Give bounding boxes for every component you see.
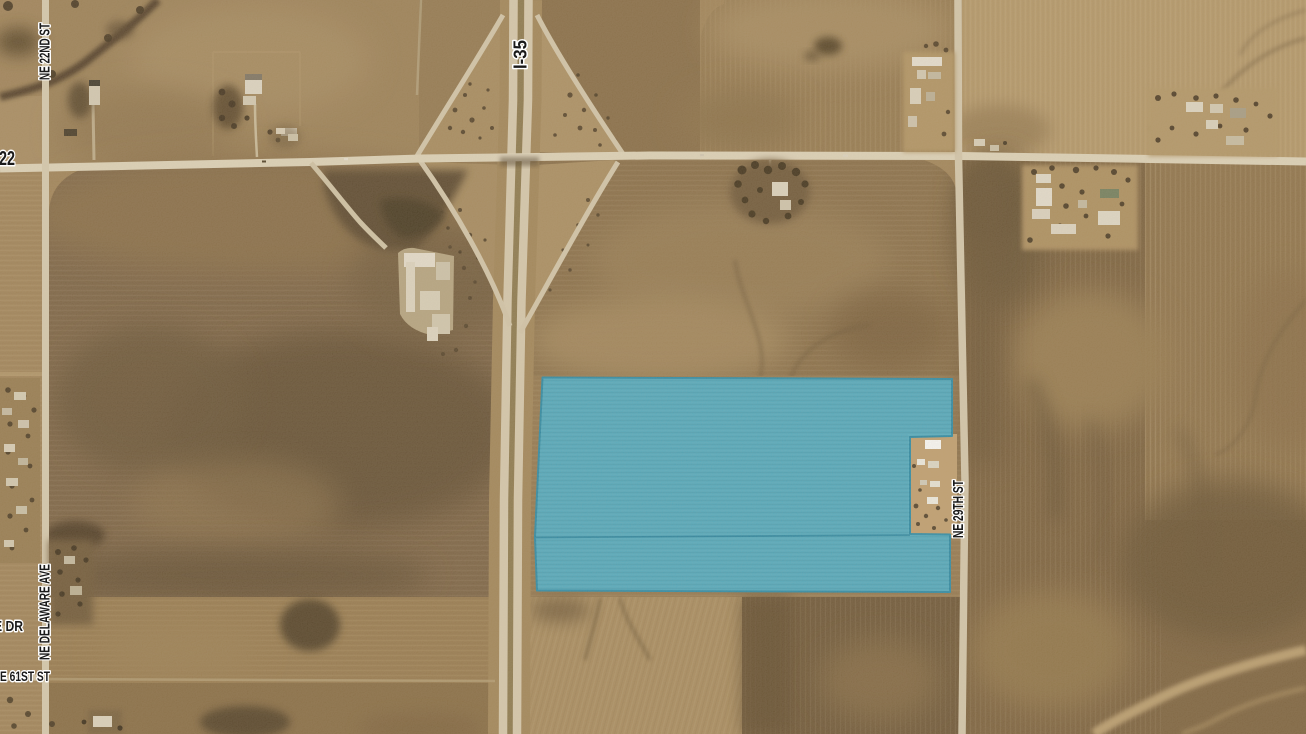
svg-text:22: 22 (0, 148, 15, 170)
svg-text:NE 22ND ST: NE 22ND ST (37, 23, 54, 80)
svg-text:E DR: E DR (0, 618, 23, 635)
svg-text:NE DELAWARE AVE: NE DELAWARE AVE (37, 564, 54, 660)
svg-text:E 61ST ST: E 61ST ST (0, 668, 50, 684)
svg-text:I-35: I-35 (511, 40, 531, 69)
svg-text:NE 29TH ST: NE 29TH ST (950, 480, 967, 538)
